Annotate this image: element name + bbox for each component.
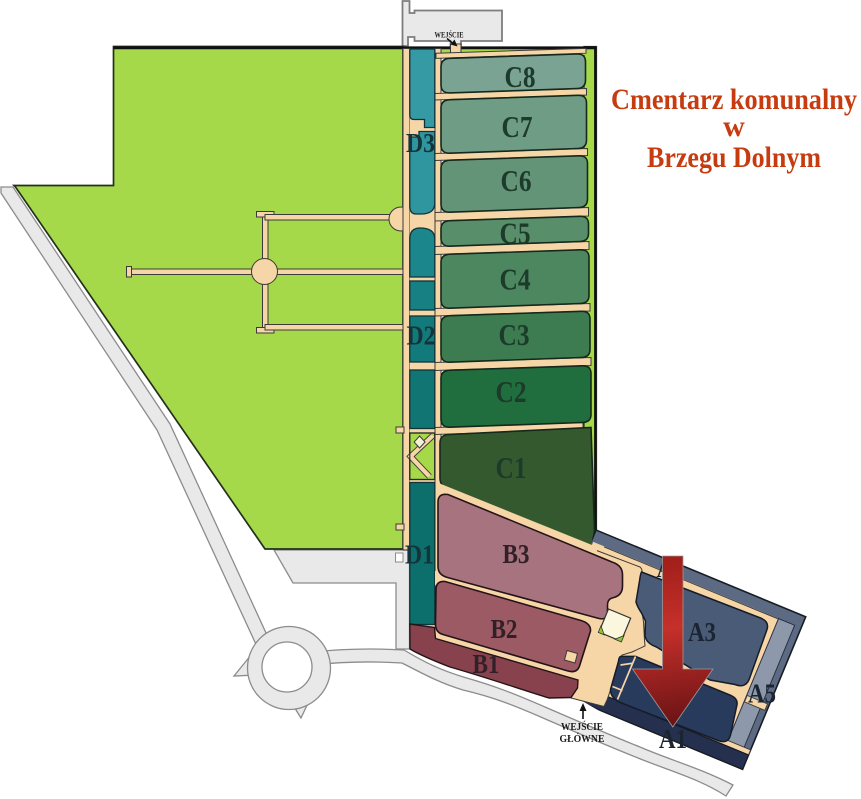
svg-text:D3: D3 [406,128,435,158]
svg-text:C6: C6 [501,163,532,198]
svg-text:WEJŚCIE: WEJŚCIE [561,721,603,733]
svg-text:C7: C7 [502,109,533,144]
svg-text:B2: B2 [491,614,518,644]
svg-text:C2: C2 [496,374,527,409]
svg-text:w: w [723,110,745,143]
svg-text:C1: C1 [496,450,527,485]
svg-text:B1: B1 [473,649,500,679]
svg-text:Brzegu Dolnym: Brzegu Dolnym [647,141,821,174]
svg-text:A5: A5 [748,679,776,709]
svg-text:B3: B3 [503,539,530,569]
svg-text:D1: D1 [405,540,434,570]
svg-text:A1: A1 [659,724,687,754]
svg-text:GŁÓWNE: GŁÓWNE [560,733,605,745]
svg-text:C8: C8 [505,59,536,94]
svg-text:A3: A3 [688,617,716,647]
svg-text:WEJŚCIE: WEJŚCIE [435,30,464,40]
svg-text:C3: C3 [499,317,530,352]
svg-text:C4: C4 [500,262,531,297]
svg-text:C5: C5 [500,216,531,251]
svg-text:D2: D2 [407,321,436,351]
